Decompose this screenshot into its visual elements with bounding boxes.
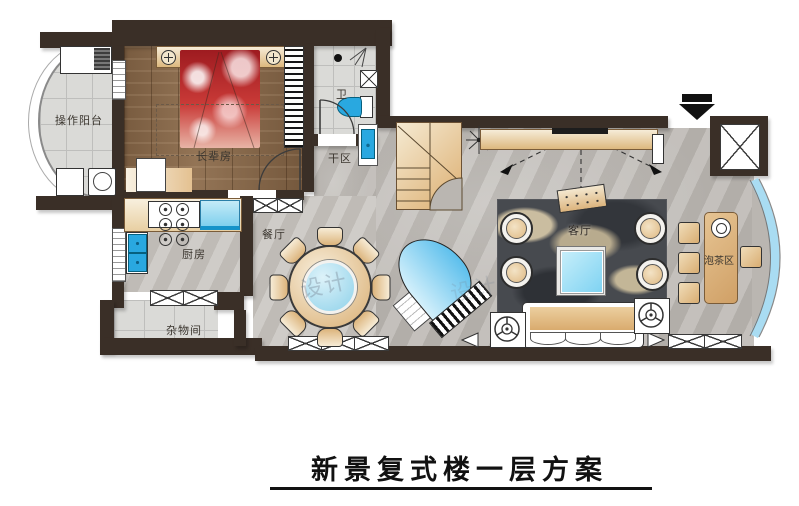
kitchen-sink-basin — [128, 234, 147, 253]
stove-burner-icon — [176, 203, 189, 216]
speaker-icon — [635, 299, 668, 332]
floor-speaker — [490, 312, 526, 348]
floor-speaker — [634, 298, 670, 334]
tea-stool — [678, 222, 700, 244]
shaft-column-window — [720, 124, 760, 170]
armchair — [500, 212, 533, 245]
room-label-bedroom: 长辈房 — [196, 148, 232, 164]
wardrobe-hanging-clothes — [284, 46, 304, 148]
wall-storage-right — [214, 292, 244, 310]
room-label-balcony: 操作阳台 — [55, 112, 103, 128]
gas-stove — [148, 201, 200, 228]
dining-chair — [270, 275, 289, 301]
stove-burner-icon — [159, 203, 172, 216]
wall-top-left-wing — [112, 20, 392, 46]
armchair — [634, 212, 667, 245]
coffee-table-glass — [561, 251, 603, 293]
tea-stool — [678, 252, 700, 274]
sofa-seat-arc — [600, 332, 636, 345]
kitchen-storage-window — [150, 290, 185, 306]
dining-chair — [317, 227, 343, 246]
kettle-icon — [711, 218, 731, 238]
speaker-icon — [491, 313, 524, 346]
staircase — [396, 122, 462, 210]
dining-chair — [317, 328, 343, 347]
balcony-sink-drainer — [94, 48, 110, 70]
bedroom-desk — [136, 158, 166, 192]
title-underline — [270, 487, 652, 490]
tea-stool — [678, 282, 700, 304]
kitchen-sink-basin — [128, 253, 147, 272]
tea-bottom-window — [704, 334, 742, 349]
stove-burner-icon — [176, 218, 189, 231]
dryer-appliance — [88, 168, 116, 196]
bathroom-shaft-window — [360, 70, 378, 88]
floor-plan: 操作阳台 长辈房 卫 干区 厨房 杂物间 餐厅 客厅 泡茶区 设计 设计 — [0, 0, 799, 506]
stove-burner-icon — [176, 233, 189, 246]
room-label-dining: 餐厅 — [262, 226, 286, 242]
sofa-cushion — [530, 307, 635, 330]
coffee-table — [556, 246, 606, 296]
balcony-sink — [60, 46, 112, 74]
sofa — [522, 302, 644, 348]
armchair — [636, 258, 669, 291]
kettle-inner-ring — [716, 223, 727, 234]
kitchen-sink-unit — [126, 232, 148, 274]
room-label-tea-area: 泡茶区 — [704, 252, 734, 267]
wall-balcony-bottom — [36, 196, 124, 210]
sofa-seat-arc — [565, 332, 601, 345]
bedside-lamp-icon — [161, 50, 176, 65]
room-label-kitchen: 厨房 — [182, 246, 206, 262]
room-label-storage: 杂物间 — [166, 322, 202, 338]
sofa-seat-arc — [530, 332, 566, 345]
room-label-living: 客厅 — [568, 222, 592, 238]
kitchen-glass-counter — [200, 200, 240, 230]
dryer-door-circle — [93, 172, 112, 191]
bedroom-left-window — [112, 60, 126, 100]
dry-area-sink — [361, 129, 375, 159]
dining-top-window — [253, 198, 279, 213]
entrance-arrow-icon — [679, 104, 715, 120]
plan-title: 新景复式楼一层方案 — [60, 448, 799, 487]
stove-burner-icon — [159, 233, 172, 246]
dining-top-window — [277, 198, 303, 213]
stove-burner-icon — [159, 218, 172, 231]
tea-bottom-window — [668, 334, 706, 349]
entrance-arrow-icon — [682, 94, 712, 102]
room-label-bathroom: 卫 — [336, 86, 348, 102]
tea-stool — [740, 246, 762, 268]
bedside-lamp-icon — [266, 50, 281, 65]
room-label-dry-area: 干区 — [328, 150, 352, 166]
kitchen-left-window — [112, 228, 126, 282]
kitchen-storage-window — [183, 290, 218, 306]
bath-door-opening — [318, 134, 356, 146]
tv-screen — [552, 128, 608, 134]
wall-bath-right — [376, 28, 390, 120]
washing-machine — [56, 168, 84, 196]
dining-bottom-window — [354, 336, 389, 351]
armchair — [500, 256, 533, 289]
entry-door-leaf — [652, 134, 664, 164]
wall-dining-left-low — [234, 310, 246, 346]
